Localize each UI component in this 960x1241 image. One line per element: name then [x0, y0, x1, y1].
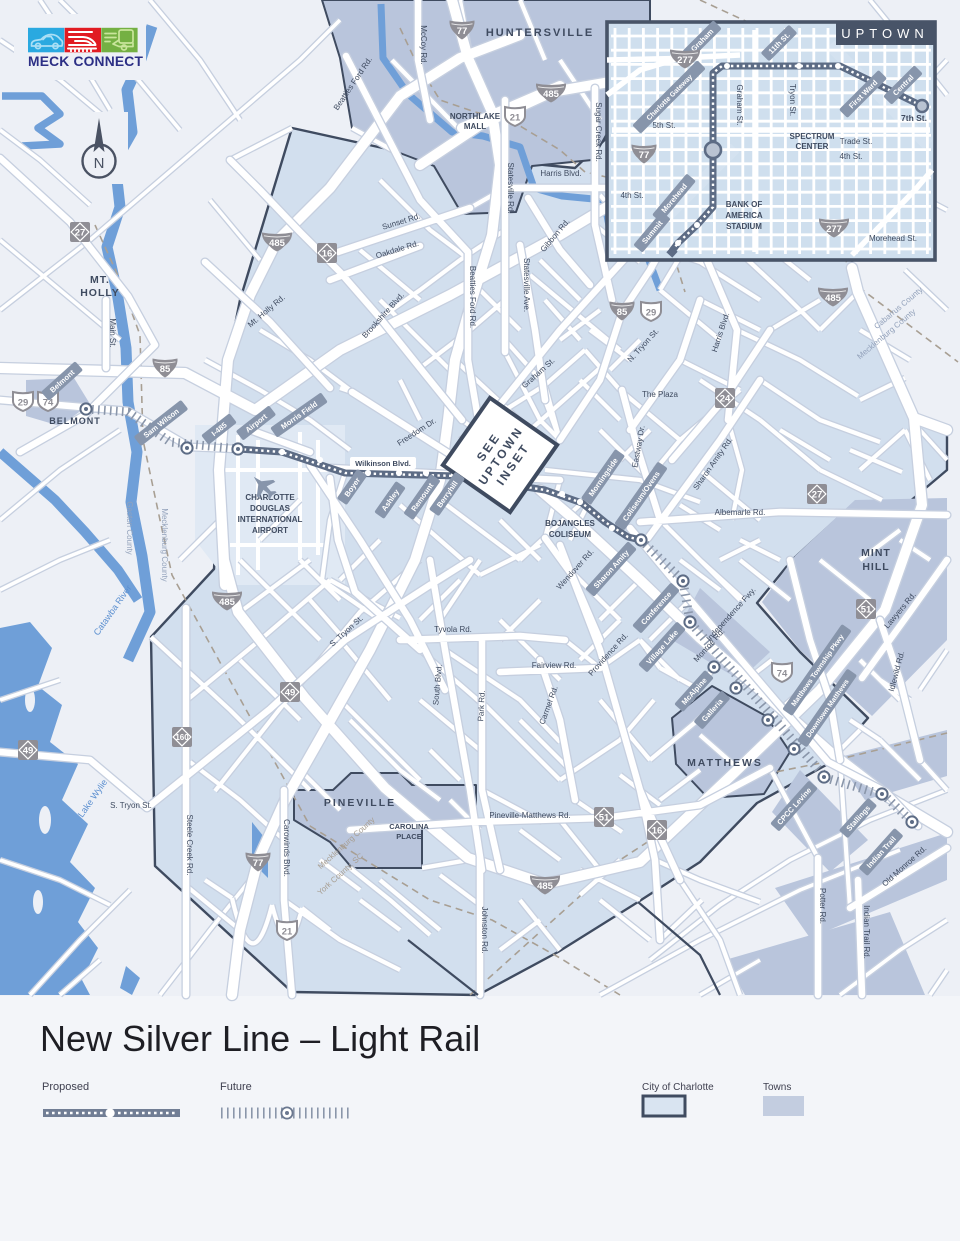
- svg-text:New Silver Line – Light Rail: New Silver Line – Light Rail: [40, 1018, 480, 1059]
- svg-text:Gaston County: Gaston County: [125, 501, 134, 554]
- svg-text:CENTER: CENTER: [796, 142, 829, 151]
- svg-text:MINT: MINT: [861, 547, 891, 559]
- svg-text:Harris Blvd.: Harris Blvd.: [540, 169, 581, 178]
- svg-text:29: 29: [18, 398, 29, 409]
- svg-text:Steele Creek Rd.: Steele Creek Rd.: [185, 815, 194, 876]
- svg-text:Park Rd.: Park Rd.: [476, 690, 487, 722]
- svg-text:485: 485: [537, 881, 554, 892]
- svg-text:HOLLY: HOLLY: [80, 287, 120, 299]
- svg-text:77: 77: [253, 858, 264, 869]
- svg-text:485: 485: [543, 89, 560, 100]
- svg-text:MATTHEWS: MATTHEWS: [687, 757, 763, 769]
- svg-text:Johnston Rd.: Johnston Rd.: [480, 906, 489, 953]
- svg-text:Statesville Ave.: Statesville Ave.: [522, 258, 531, 312]
- svg-text:485: 485: [825, 293, 842, 304]
- svg-text:85: 85: [160, 364, 171, 375]
- svg-text:MT.: MT.: [90, 274, 110, 286]
- svg-text:CAROLINA: CAROLINA: [389, 822, 429, 831]
- svg-text:Tryon St.: Tryon St.: [788, 84, 797, 116]
- svg-text:NORTHLAKE: NORTHLAKE: [450, 112, 501, 121]
- svg-text:S. Tryon St.: S. Tryon St.: [110, 801, 152, 810]
- svg-text:7th St.: 7th St.: [901, 113, 927, 123]
- svg-text:49: 49: [23, 745, 34, 756]
- svg-text:Mecklenburg County: Mecklenburg County: [160, 508, 169, 581]
- svg-text:HILL: HILL: [862, 561, 889, 573]
- svg-text:21: 21: [510, 113, 521, 124]
- svg-text:HUNTERSVILLE: HUNTERSVILLE: [486, 27, 594, 39]
- svg-text:77: 77: [457, 26, 468, 37]
- svg-text:Trade St.: Trade St.: [840, 137, 873, 146]
- svg-text:Future: Future: [220, 1081, 252, 1093]
- svg-text:77: 77: [639, 150, 650, 161]
- svg-text:160: 160: [175, 733, 189, 742]
- svg-text:City of Charlotte: City of Charlotte: [642, 1082, 714, 1093]
- svg-text:Morehead St.: Morehead St.: [869, 234, 917, 243]
- svg-text:16: 16: [322, 248, 333, 259]
- svg-text:Wilkinson Blvd.: Wilkinson Blvd.: [355, 459, 411, 468]
- svg-text:16: 16: [652, 825, 663, 836]
- svg-text:INTERNATIONAL: INTERNATIONAL: [238, 515, 303, 524]
- svg-text:Graham St.: Graham St.: [735, 85, 744, 126]
- svg-text:Carowinds Blvd.: Carowinds Blvd.: [282, 819, 291, 877]
- svg-text:UPTOWN: UPTOWN: [841, 26, 929, 41]
- svg-text:DOUGLAS: DOUGLAS: [250, 504, 291, 513]
- svg-text:29: 29: [646, 308, 657, 319]
- svg-text:MALL: MALL: [464, 122, 486, 131]
- svg-text:Indian Trail Rd.: Indian Trail Rd.: [862, 905, 871, 959]
- svg-text:AIRPORT: AIRPORT: [252, 526, 288, 535]
- svg-text:4th St.: 4th St.: [620, 191, 643, 200]
- svg-text:74: 74: [777, 669, 788, 680]
- svg-text:N: N: [94, 155, 105, 172]
- svg-text:Albemarle Rd.: Albemarle Rd.: [715, 508, 766, 517]
- svg-text:27: 27: [75, 227, 86, 238]
- svg-text:24: 24: [720, 393, 731, 404]
- svg-text:Main St.: Main St.: [108, 318, 117, 347]
- svg-text:51: 51: [861, 604, 872, 615]
- svg-text:4th St.: 4th St.: [839, 152, 862, 161]
- svg-text:5th St.: 5th St.: [652, 121, 675, 130]
- svg-text:PLACE: PLACE: [396, 832, 421, 841]
- svg-text:277: 277: [677, 55, 693, 66]
- svg-text:Potter Rd.: Potter Rd.: [818, 888, 827, 924]
- svg-text:27: 27: [812, 489, 823, 500]
- svg-text:BOJANGLES: BOJANGLES: [545, 519, 595, 528]
- svg-text:BELMONT: BELMONT: [49, 416, 101, 426]
- svg-text:Pineville-Matthews Rd.: Pineville-Matthews Rd.: [489, 811, 570, 820]
- svg-text:Fairview Rd.: Fairview Rd.: [532, 661, 576, 670]
- svg-text:Beatties Ford Rd.: Beatties Ford Rd.: [468, 266, 477, 328]
- svg-text:The Plaza: The Plaza: [642, 390, 679, 399]
- svg-text:Sugar Creek Rd.: Sugar Creek Rd.: [594, 102, 603, 162]
- svg-text:COLISEUM: COLISEUM: [549, 530, 592, 539]
- svg-text:Tyvola Rd.: Tyvola Rd.: [434, 625, 472, 634]
- svg-text:Statesville Rd.: Statesville Rd.: [506, 162, 515, 213]
- svg-text:Towns: Towns: [763, 1082, 791, 1093]
- svg-text:Proposed: Proposed: [42, 1081, 89, 1093]
- svg-text:485: 485: [269, 238, 286, 249]
- svg-text:21: 21: [282, 927, 293, 938]
- svg-text:McCoy Rd.: McCoy Rd.: [419, 25, 428, 65]
- svg-text:51: 51: [599, 812, 610, 823]
- svg-text:49: 49: [285, 687, 296, 698]
- svg-text:BANK OF: BANK OF: [726, 200, 763, 209]
- svg-text:STADIUM: STADIUM: [726, 222, 762, 231]
- svg-text:277: 277: [826, 224, 842, 235]
- svg-text:MECK CONNECT: MECK CONNECT: [28, 54, 143, 69]
- svg-text:PINEVILLE: PINEVILLE: [324, 797, 396, 809]
- svg-text:AMERICA: AMERICA: [725, 211, 763, 220]
- svg-text:SPECTRUM: SPECTRUM: [790, 132, 835, 141]
- svg-text:485: 485: [219, 597, 236, 608]
- svg-text:85: 85: [617, 307, 628, 318]
